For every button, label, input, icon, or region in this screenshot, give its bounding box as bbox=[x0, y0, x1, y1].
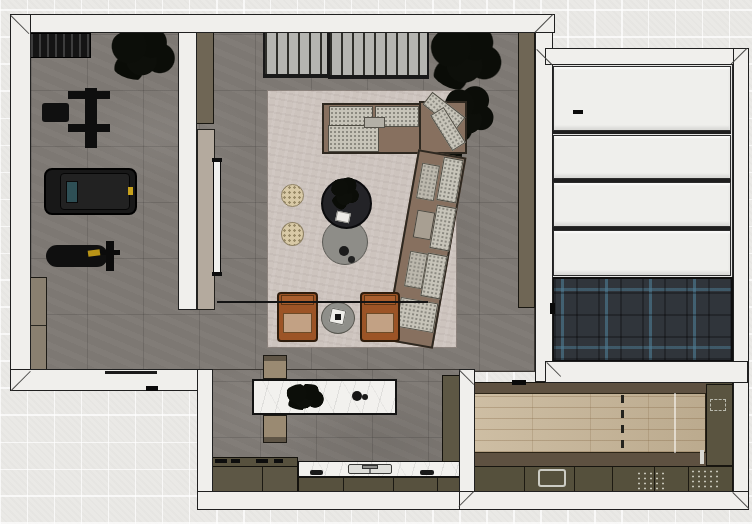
cable-machine-arm-bottom bbox=[68, 124, 110, 132]
gym-door-stop bbox=[146, 386, 158, 391]
games-cab-div-1 bbox=[524, 467, 525, 492]
burner-2 bbox=[231, 459, 240, 463]
games-cab-div-2 bbox=[574, 467, 575, 492]
counter-item-1 bbox=[310, 470, 323, 475]
island-bench-bottom[interactable] bbox=[263, 415, 287, 443]
lane-dashed-line bbox=[621, 395, 624, 451]
slat-unit-left[interactable] bbox=[263, 27, 329, 78]
lower-cab-div-2 bbox=[393, 478, 394, 491]
wall-garage-right bbox=[733, 48, 749, 510]
lower-cab-div-1 bbox=[343, 478, 344, 491]
counter-divider bbox=[262, 467, 263, 491]
garage-door-panel-1[interactable] bbox=[553, 66, 731, 131]
counter-item-2 bbox=[420, 470, 434, 475]
sink-faucet bbox=[362, 465, 378, 469]
gym-door-threshold bbox=[105, 371, 157, 374]
garage-door-panel-4[interactable] bbox=[553, 230, 731, 276]
wall-kitchen-games bbox=[459, 369, 475, 510]
games-cab-div-5 bbox=[688, 467, 689, 492]
wall-games-bottom bbox=[459, 491, 749, 510]
side-table-decor-1 bbox=[339, 246, 349, 256]
burner-3 bbox=[256, 459, 268, 463]
wall-living-garage bbox=[535, 32, 553, 382]
wall-kitchen-left bbox=[197, 369, 213, 510]
cabinet-clutter-2 bbox=[690, 469, 721, 490]
games-cabinet-right[interactable] bbox=[706, 384, 733, 466]
wall-garage-top bbox=[545, 48, 748, 65]
garage-door-handle bbox=[573, 110, 583, 114]
lane-frame-top bbox=[473, 383, 706, 393]
pouf-2[interactable] bbox=[281, 222, 304, 246]
herringbone-door-tab bbox=[550, 303, 555, 314]
treadmill-console bbox=[66, 181, 78, 203]
armchair-1-cushion bbox=[283, 313, 312, 333]
coffee-table-plant bbox=[331, 176, 359, 210]
wall-gym-living-divider bbox=[178, 32, 197, 310]
weight-bench-rack bbox=[106, 241, 114, 271]
garage-door-panel-3[interactable] bbox=[553, 182, 731, 227]
pouf-1[interactable] bbox=[281, 184, 304, 207]
wall-left bbox=[10, 14, 31, 391]
sofa-seat-cushion bbox=[328, 125, 379, 152]
games-cabinet-right-decor bbox=[710, 399, 726, 411]
garage-panel-seam-2 bbox=[553, 179, 731, 182]
floor-herringbone bbox=[552, 277, 733, 362]
gym-plant[interactable] bbox=[108, 28, 178, 80]
sofa-tray bbox=[364, 117, 385, 128]
lane-frame-bottom bbox=[473, 453, 706, 466]
games-cab-div-3 bbox=[612, 467, 613, 492]
tv-screen[interactable] bbox=[213, 161, 221, 273]
burner-4 bbox=[274, 459, 283, 463]
floor-lamp-arm bbox=[217, 301, 428, 303]
chairs-table-decor-center bbox=[335, 314, 341, 320]
weight-bench-foot bbox=[100, 250, 120, 255]
living-tree[interactable] bbox=[428, 24, 504, 90]
wall-garage-games bbox=[545, 361, 748, 383]
treadmill-marker bbox=[128, 187, 133, 195]
island-bowl-1 bbox=[352, 391, 362, 401]
garage-door-panel-2[interactable] bbox=[553, 135, 731, 179]
cooktop-counter-front bbox=[207, 466, 298, 492]
island-centerpiece bbox=[284, 384, 326, 410]
gym-cabinet-divider bbox=[31, 325, 46, 326]
lower-cab-div-3 bbox=[437, 478, 438, 491]
serving-tray[interactable] bbox=[538, 469, 566, 487]
lane-seam bbox=[674, 393, 676, 453]
armchair-1-back bbox=[281, 295, 314, 305]
wall-top bbox=[10, 14, 555, 33]
side-table-decor-2 bbox=[348, 256, 355, 263]
floor-plan bbox=[0, 0, 752, 524]
lane-corner-trim bbox=[700, 450, 704, 464]
dumbbell-rack[interactable] bbox=[30, 33, 91, 58]
media-cabinet-right[interactable] bbox=[518, 32, 535, 308]
armchair-2-back bbox=[364, 295, 396, 305]
cabinet-clutter-1 bbox=[636, 471, 668, 490]
cable-machine-arm-top bbox=[68, 91, 110, 99]
bowling-lane[interactable] bbox=[473, 393, 706, 453]
media-cabinet-left[interactable] bbox=[196, 32, 214, 124]
armchair-2-cushion bbox=[366, 313, 394, 333]
games-door-sensor bbox=[512, 380, 526, 385]
cable-machine-seat bbox=[42, 103, 69, 122]
garage-panel-seam-1 bbox=[553, 131, 731, 134]
garage-panel-seam-3 bbox=[553, 227, 731, 230]
island-bowl-2 bbox=[362, 394, 368, 400]
wall-kitchen-bottom bbox=[197, 491, 475, 510]
island-bench-top[interactable] bbox=[263, 355, 287, 379]
burner-1 bbox=[215, 459, 227, 463]
